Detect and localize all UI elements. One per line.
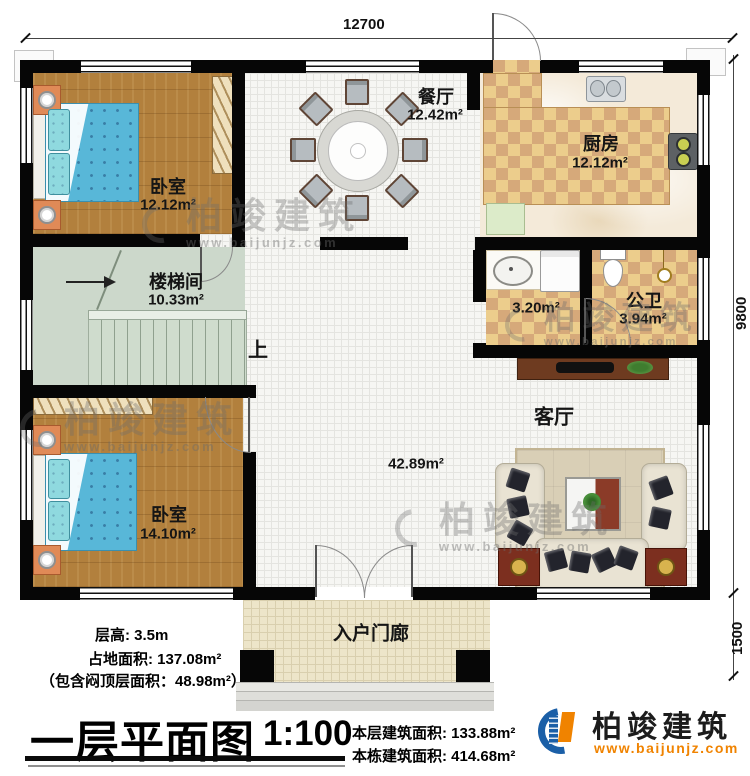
porch-column [456,650,490,682]
stair-handrail [88,310,247,320]
sofa-cushion [648,506,672,530]
living-area: 42.89m² [388,456,444,473]
bed2-nightstand [33,425,61,455]
washroom-sink-drain [509,267,513,271]
wall-bedroom1-right [232,60,245,247]
title-underline-thin [28,765,345,767]
stairwell-label: 楼梯间 [149,268,203,294]
porch-label: 入户门廊 [333,619,409,646]
bed2-pillow [48,459,70,499]
dimension-top-value: 12700 [343,16,385,33]
stair-treads [88,318,247,387]
wall-washroom-left [473,250,486,302]
window-bedroom2-left [20,430,33,520]
washroom-area: 3.20m² [512,300,560,317]
stair-direction-line [66,281,106,283]
window-living-right [697,425,710,530]
kitchen-sink-basin [590,80,605,97]
window-stairwell-left [20,300,33,370]
stairs-up-label: 上 [248,334,268,363]
note-attic: （包含闷顶层面积：48.98m²） [40,670,246,691]
bedroom1-area: 12.12m² [140,197,196,214]
sofa-cushion [506,495,530,519]
note-floor-height: 层高: 3.5m [95,624,168,645]
kitchen-door-leaf [492,13,494,60]
dining-chair [345,195,369,221]
dining-chair [290,138,316,162]
kitchen-label: 厨房 [583,130,619,156]
note-footprint: 占地面积: 137.08m² [88,648,221,669]
wall-bedroom2-right-upper [243,385,256,397]
window-bedroom1-top [81,60,191,73]
wall-bedroom1-bottom [20,234,200,247]
entry-door-leaf [315,545,317,597]
window-living-bottom [537,587,650,600]
stove-burner [676,152,691,167]
dining-chair [402,138,428,162]
washroom-sink [493,256,533,286]
wall-bedroom2-right-lower [243,452,256,600]
kitchen-sink-basin [606,80,621,97]
bed1-pillow [48,109,70,151]
dining-chair [345,79,369,105]
washing-machine [540,250,580,292]
coffee-table-plant [583,493,601,511]
title-underline [25,756,345,761]
dining-area: 12.42m² [407,107,463,124]
wall-bath-bottom [473,345,710,358]
bedroom2-door-leaf [248,397,250,452]
dining-label: 餐厅 [418,83,454,109]
window-kitchen-top [579,60,663,73]
kitchen-door-opening [493,60,540,73]
brand-site: www.baijunjz.com [594,740,739,756]
dining-table-hub [350,143,366,159]
wall-bath-top [475,237,710,250]
dimension-porch-value: 1500 [729,622,746,655]
side-table-lamp [510,558,528,576]
bed2-nightstand [33,545,61,575]
bedroom2-area: 14.10m² [140,526,196,543]
title-scale: 1:100 [263,714,353,754]
tv-plant [627,361,653,374]
toilet-lamp-cord [663,250,664,270]
stair-direction-arrow [104,276,116,288]
wall-dining-stub [320,237,408,250]
kitchen-door-swing [493,13,541,61]
stairwell-area: 10.33m² [148,292,204,309]
kitchen-area: 12.12m² [572,155,628,172]
entry-door-leaf [411,545,413,597]
bed2-pillow [48,501,70,541]
window-kitchen-right [697,95,710,165]
stat-floor-area: 本层建筑面积: 133.88m² [352,722,515,743]
toilet-door-leaf [584,298,586,343]
porch-column [240,650,274,682]
tv [556,362,614,373]
sofa-cushion [568,550,591,573]
window-toilet-right [697,258,710,340]
toilet-lamp [657,268,672,283]
porch-step [236,700,494,711]
wall-kitchen-left-stub [467,60,480,110]
dimension-right-value: 9800 [733,297,750,330]
window-dining-top [306,60,419,73]
bedroom2-label: 卧室 [151,501,187,527]
bedroom1-wardrobe [212,76,234,174]
living-label: 客厅 [534,401,574,430]
toilet-label: 公卫 [626,287,662,313]
brand-logo-building-blue [549,716,558,744]
stat-total-area: 本栋建筑面积: 414.68m² [352,745,515,766]
kitchen-counter-strip [483,73,542,109]
window-bedroom1-left [20,88,33,163]
dimension-line-top [25,38,733,39]
dimension-line-right [733,55,734,680]
side-table-lamp [657,558,675,576]
window-bedroom2-bottom [80,587,233,600]
bed1-pillow [48,153,70,195]
bedroom1-label: 卧室 [150,173,186,199]
floor-plan: 卧室 12.12m² 餐厅 12.42m² 厨房 12.12m² 楼梯间 10.… [0,0,750,776]
toilet-area: 3.94m² [619,311,667,328]
stove-burner [676,137,691,152]
bedroom2-wardrobe [33,397,153,415]
kitchen-cutting-board [486,203,525,235]
bed1-nightstand [33,200,61,230]
